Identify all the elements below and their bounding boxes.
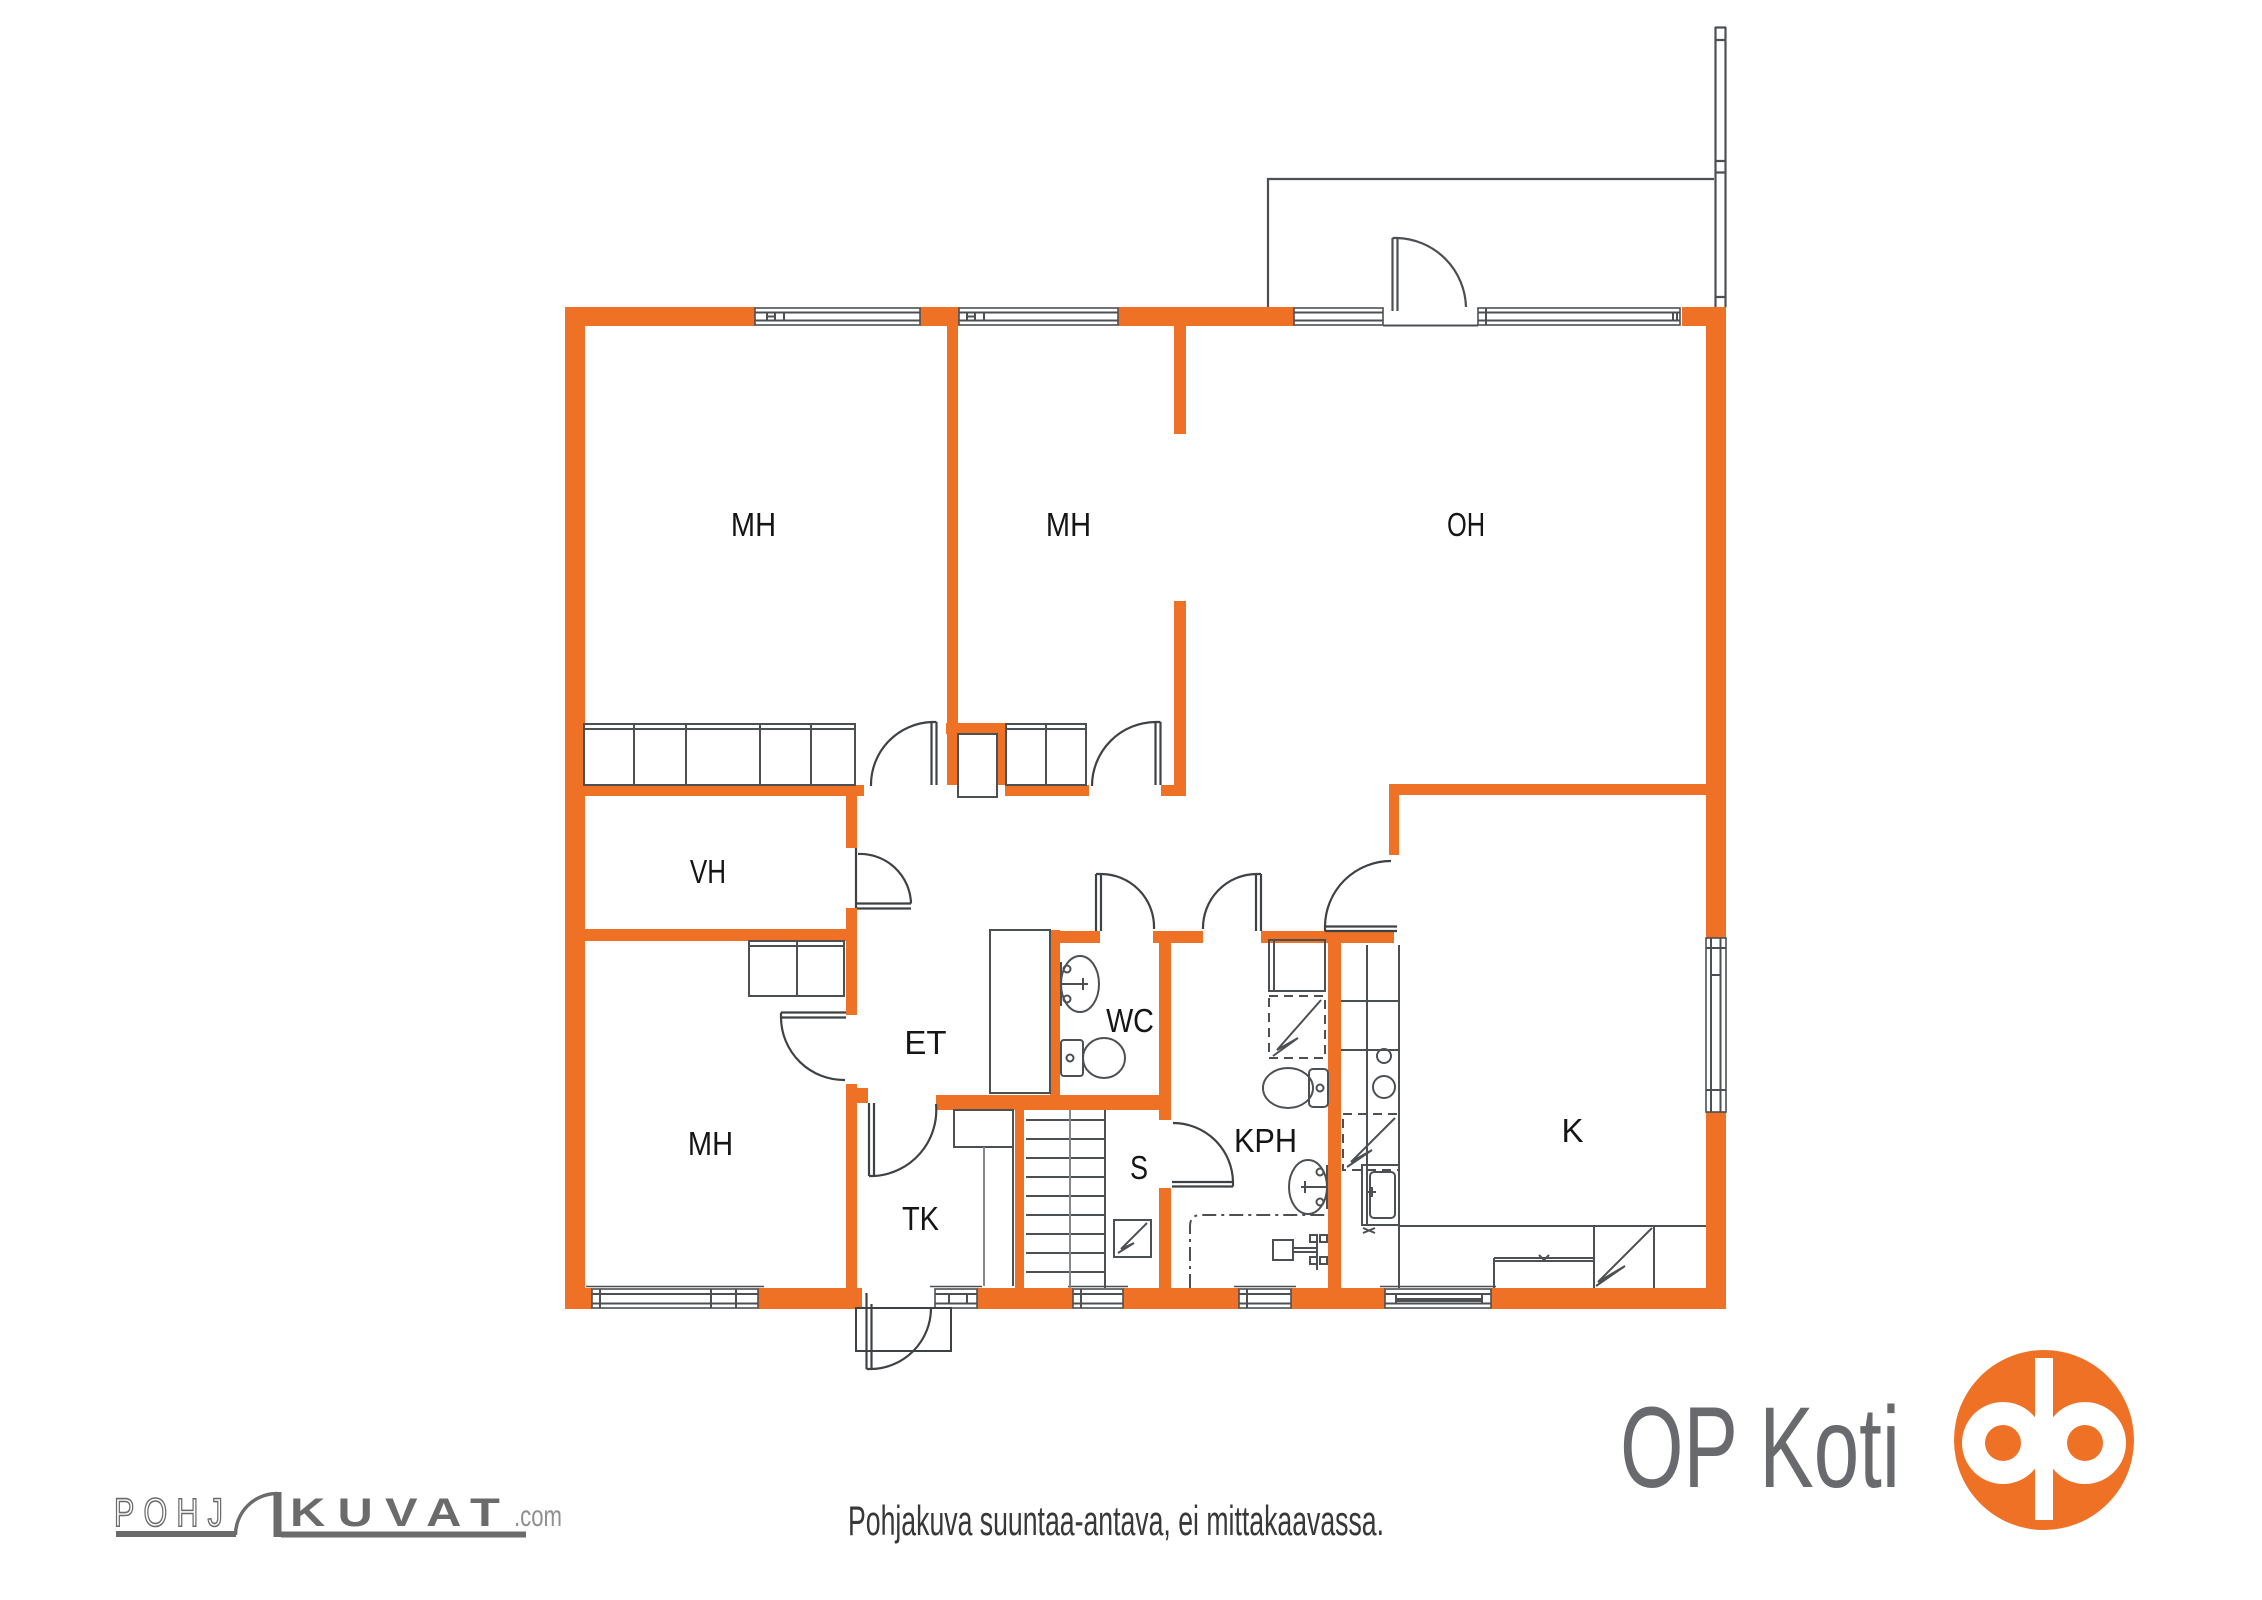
svg-text:WC: WC — [1106, 1002, 1154, 1039]
svg-text:KPH: KPH — [1234, 1122, 1297, 1159]
svg-text:Pohjakuva suuntaa-antava, ei m: Pohjakuva suuntaa-antava, ei mittakaavas… — [848, 1497, 1384, 1544]
svg-text:MH: MH — [688, 1125, 733, 1162]
svg-text:MH: MH — [1046, 506, 1091, 543]
svg-text:.com: .com — [514, 1500, 562, 1533]
svg-text:KUVAT: KUVAT — [290, 1491, 512, 1535]
svg-text:MH: MH — [731, 506, 776, 543]
svg-text:OH: OH — [1447, 507, 1485, 544]
svg-text:VH: VH — [690, 854, 726, 891]
svg-text:S: S — [1130, 1151, 1148, 1187]
svg-text:ET: ET — [904, 1024, 946, 1061]
svg-text:K: K — [1561, 1112, 1583, 1149]
svg-text:OP Koti: OP Koti — [1620, 1384, 1900, 1512]
svg-text:POHJ: POHJ — [114, 1491, 232, 1535]
svg-text:TK: TK — [902, 1200, 939, 1237]
